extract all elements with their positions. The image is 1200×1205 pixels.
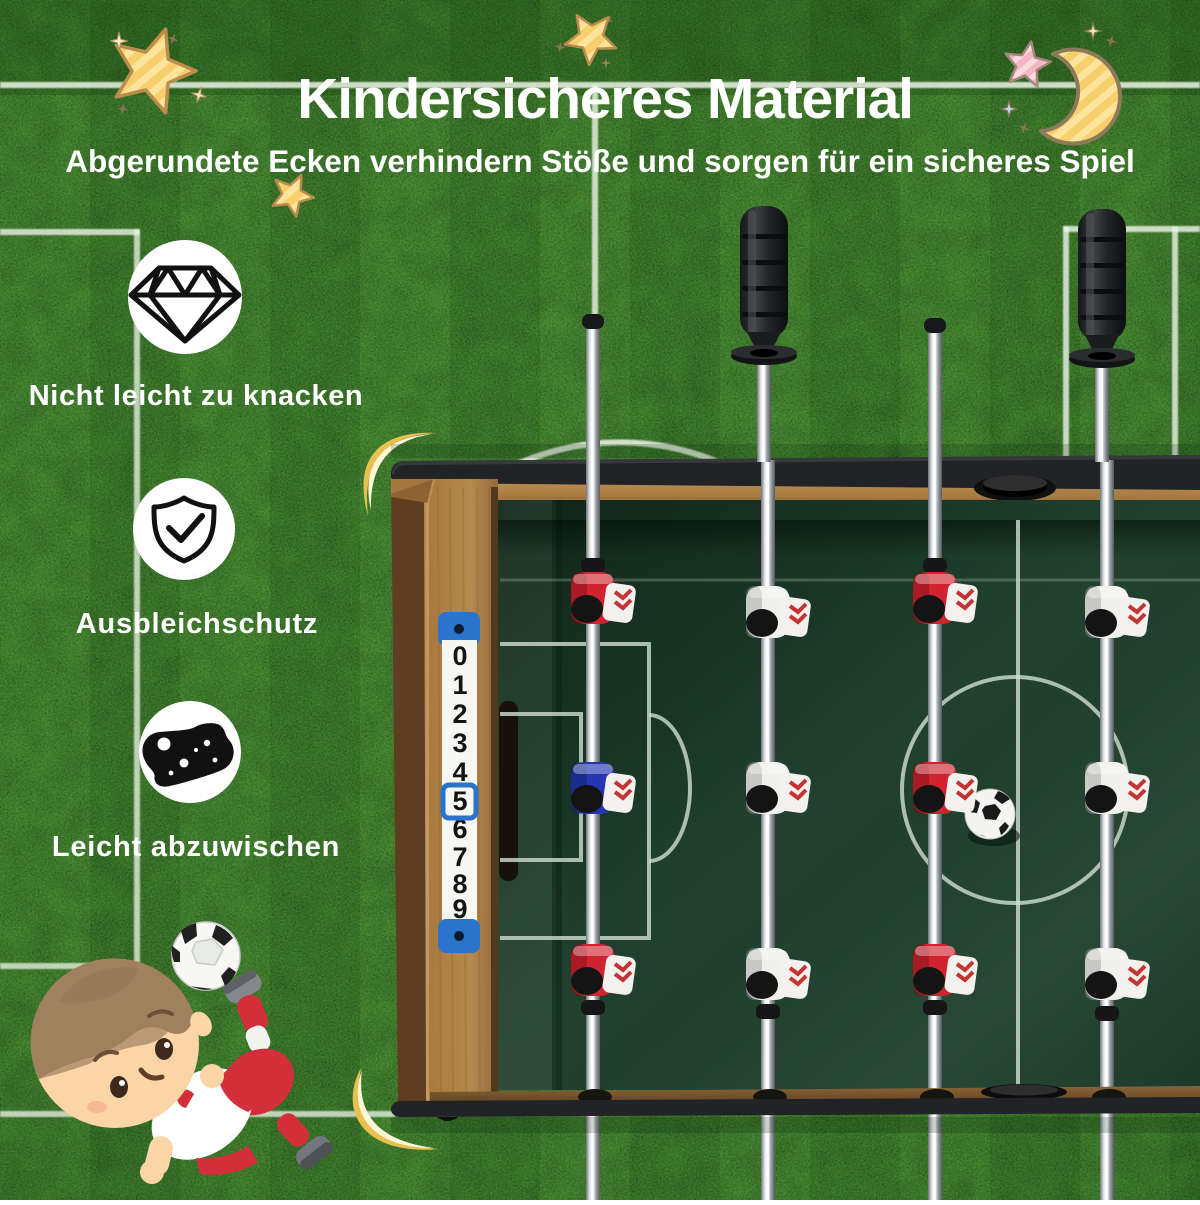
svg-text:Nicht leicht zu knacken: Nicht leicht zu knacken [29, 380, 364, 412]
svg-text:1: 1 [452, 670, 467, 700]
svg-text:Ausbleichschutz: Ausbleichschutz [76, 608, 318, 640]
svg-text:5: 5 [452, 786, 467, 816]
svg-text:Abgerundete Ecken verhindern S: Abgerundete Ecken verhindern Stöße und s… [65, 143, 1135, 179]
svg-text:Kindersicheres Material: Kindersicheres Material [297, 67, 913, 131]
svg-text:2: 2 [452, 699, 467, 729]
svg-text:Leicht abzuwischen: Leicht abzuwischen [52, 831, 340, 863]
svg-text:7: 7 [452, 842, 467, 872]
svg-text:3: 3 [452, 728, 467, 758]
svg-text:0: 0 [452, 641, 467, 671]
